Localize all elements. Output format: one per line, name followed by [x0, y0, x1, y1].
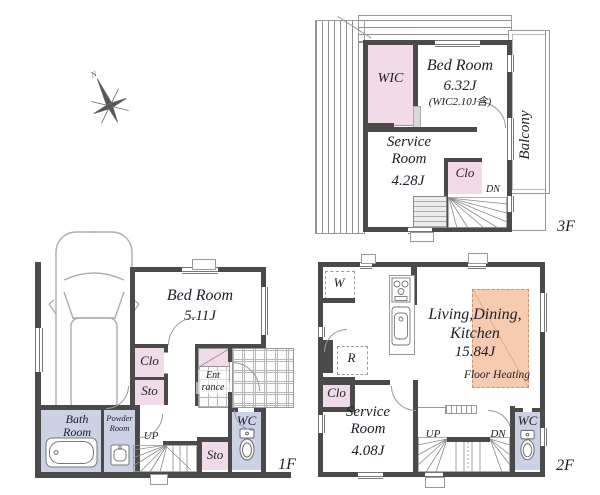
compass-icon: N	[82, 66, 138, 130]
fridge-label: R	[337, 351, 366, 369]
bedroom-3f-size: 6.32J	[410, 78, 510, 96]
bathtub-icon	[45, 437, 98, 468]
floor-2f-label: 2F	[548, 457, 582, 477]
wall-line	[394, 125, 414, 126]
storage-ladder	[413, 196, 447, 228]
stove-icon	[391, 277, 411, 303]
ldk-name-1: Living,Dining,	[402, 306, 548, 325]
window-frame	[192, 259, 216, 270]
wall	[318, 472, 358, 477]
sink-icon	[110, 444, 130, 466]
ldk-name-2: Kitchen	[402, 325, 548, 344]
wall	[261, 408, 266, 472]
window-frame	[425, 477, 445, 488]
ldk-size: 15.84J	[402, 344, 548, 362]
bedroom-1f-size: 5.11J	[148, 308, 252, 326]
wall	[383, 472, 425, 477]
wall	[218, 267, 266, 272]
wall	[540, 262, 545, 293]
wall-line	[418, 407, 445, 408]
entrance-label-2: rance	[196, 382, 230, 394]
shoe-cabinet	[198, 348, 230, 368]
wall	[261, 335, 266, 348]
wall	[507, 40, 512, 55]
window	[358, 472, 383, 479]
wall	[35, 262, 41, 328]
compass-north-label: N	[89, 69, 99, 80]
window	[507, 118, 514, 160]
balcony-label: Balcony	[517, 75, 537, 195]
stairs-1f-icon	[133, 445, 197, 472]
wall	[486, 262, 545, 267]
window	[35, 328, 43, 372]
service-room-3f-size: 4.28J	[372, 173, 444, 191]
washer-label: W	[325, 276, 353, 294]
plan-outline	[512, 230, 546, 231]
entrance-label-1: Ent	[198, 370, 228, 382]
window-frame	[410, 232, 434, 242]
wall	[447, 437, 490, 442]
wall	[318, 262, 323, 327]
service-room-3f-name: Service Room	[378, 134, 440, 172]
floor-3f-label: 3F	[549, 218, 583, 238]
wall	[323, 298, 355, 303]
storage-1f-label: Sto	[135, 384, 164, 400]
wc-2f-label: WC	[515, 414, 540, 428]
window-frame	[150, 474, 168, 485]
floor-heating-label: Floor Heating	[452, 369, 542, 383]
roof-hatch-left	[315, 20, 365, 234]
storage2-1f-label: Sto	[202, 448, 228, 464]
stairs-3f-icon	[448, 197, 507, 228]
bedroom-3f-name: Bed Room	[410, 57, 510, 77]
door-arc	[488, 410, 512, 434]
window-frame	[468, 253, 488, 264]
stair-railing	[445, 405, 477, 414]
wall	[363, 227, 408, 232]
window	[261, 287, 268, 335]
bedroom-3f-note: (WIC2.10J含)	[406, 96, 514, 110]
window-frame	[361, 254, 376, 264]
service-room-2f-name: Service Room	[338, 404, 398, 442]
floor-plan: N Balcony WIC	[0, 0, 600, 495]
stairs-2f-icon	[418, 437, 510, 472]
closet-3f-label: Clo	[448, 166, 482, 182]
window	[507, 196, 514, 212]
closet-1f-label: Clo	[135, 354, 164, 370]
wall	[372, 262, 468, 267]
window	[540, 428, 547, 446]
service-room-2f-size: 4.08J	[332, 443, 404, 461]
window	[318, 327, 325, 337]
wic-label: WIC	[368, 71, 413, 89]
wall	[323, 380, 390, 385]
door-arc	[324, 329, 347, 352]
closet-2f-label: Clo	[323, 386, 350, 402]
wall	[507, 160, 512, 196]
plan-outline	[545, 30, 546, 231]
wall	[261, 267, 266, 287]
wall	[132, 267, 182, 272]
down-3f-label: DN	[480, 184, 506, 195]
roof-hatch-top	[358, 15, 512, 43]
wall	[443, 472, 545, 477]
window	[318, 415, 325, 433]
wall	[318, 433, 323, 477]
window	[435, 40, 480, 47]
toilet-icon	[519, 429, 536, 462]
toilet-icon	[238, 428, 256, 462]
bedroom-1f-name: Bed Room	[148, 287, 252, 307]
powder-room-label: Powder Room	[104, 414, 135, 436]
door-gap	[164, 352, 168, 374]
wall	[363, 127, 477, 132]
floor-1f-label: 1F	[270, 456, 304, 476]
wall	[318, 262, 360, 267]
